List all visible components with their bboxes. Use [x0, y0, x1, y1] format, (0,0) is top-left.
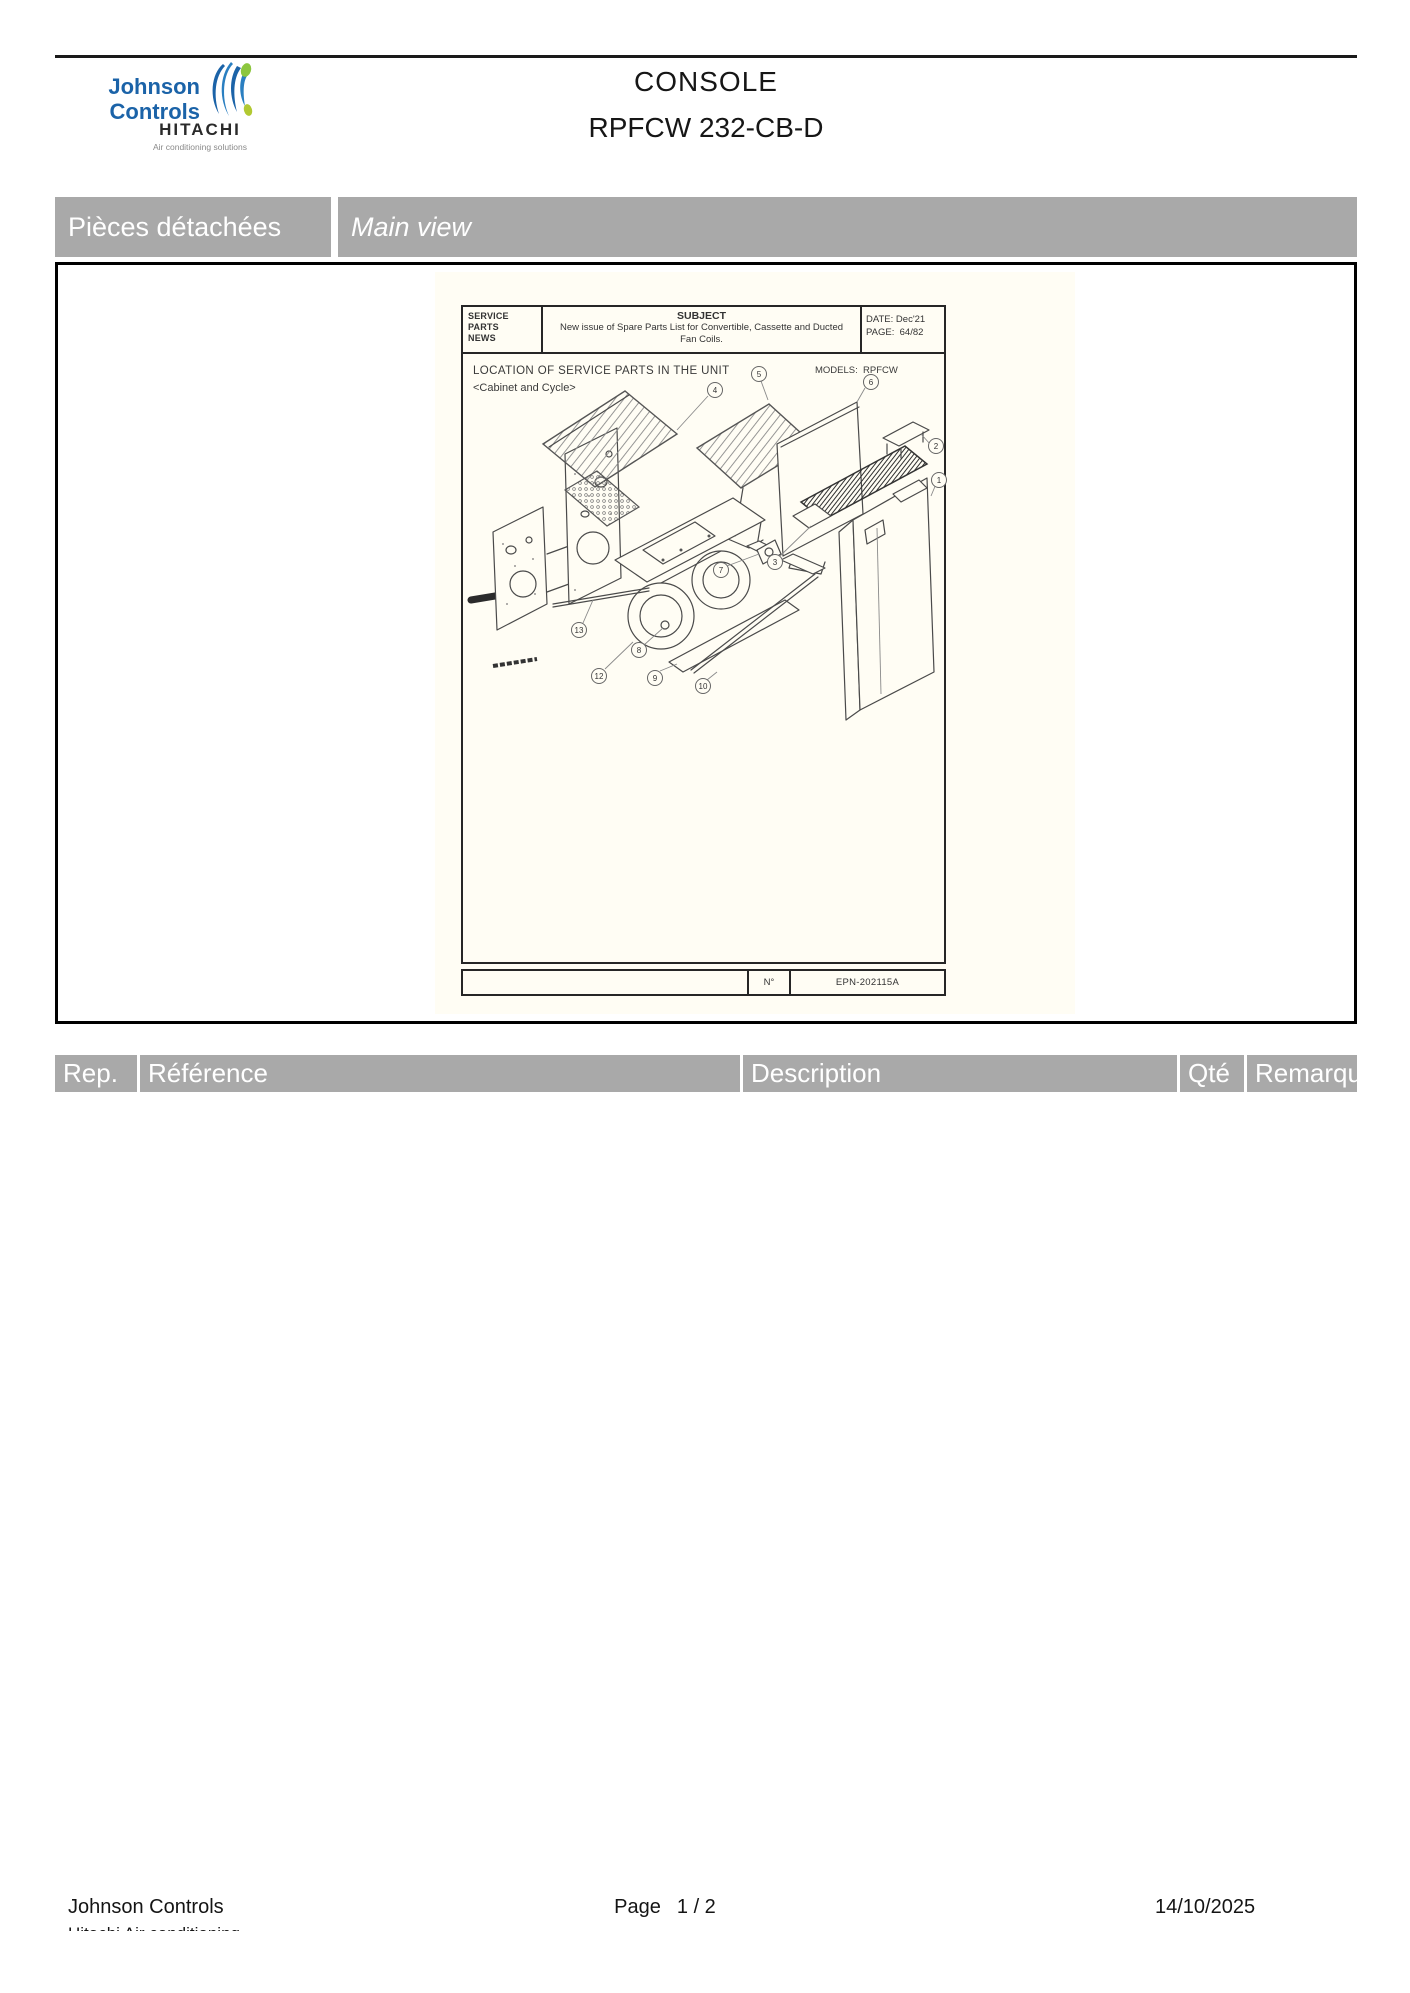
svg-text:1: 1	[937, 476, 942, 485]
spn-header-row: SERVICE PARTS NEWS SUBJECT New issue of …	[463, 307, 944, 354]
section-bar-right: Main view	[338, 197, 1357, 257]
svg-text:9: 9	[653, 674, 658, 683]
page-row: PAGE: 64/82	[866, 326, 940, 339]
callout-5: 5	[752, 367, 767, 382]
subject-text-line1: New issue of Spare Parts List for Conver…	[543, 322, 860, 334]
svg-text:10: 10	[699, 682, 708, 691]
callout-1: 1	[932, 473, 947, 488]
svg-text:5: 5	[757, 370, 762, 379]
spn-drawing-number: EPN-202115A	[791, 971, 944, 994]
spn-subject-cell: SUBJECT New issue of Spare Parts List fo…	[543, 307, 862, 352]
part-fitting	[661, 621, 669, 629]
footer-page-value: 1 / 2	[677, 1896, 716, 1918]
page-title: CONSOLE	[55, 66, 1357, 98]
column-header-qty: Qté	[1180, 1055, 1244, 1092]
svg-text:13: 13	[575, 626, 584, 635]
callout-6: 6	[864, 375, 879, 390]
column-header-reference: Référence	[140, 1055, 740, 1092]
column-header-remarks: Remarques	[1247, 1055, 1357, 1092]
svg-text:4: 4	[713, 386, 718, 395]
footer-page-indicator: Page1 / 2	[0, 1896, 1330, 1919]
svg-text:7: 7	[719, 566, 724, 575]
part-side-panel-left	[493, 507, 547, 630]
document-page: Johnson Controls HITACHI Air conditionin…	[0, 0, 1410, 1993]
subject-label: SUBJECT	[543, 310, 860, 322]
spn-footer-row: N° EPN-202115A	[461, 969, 946, 996]
spn-box-label: SERVICE PARTS NEWS	[463, 307, 543, 352]
part-coil-1	[543, 391, 677, 487]
spn-body: LOCATION OF SERVICE PARTS IN THE UNIT <C…	[463, 354, 944, 962]
svg-text:6: 6	[869, 378, 874, 387]
svg-text:8: 8	[637, 646, 642, 655]
spn-page-label: PAGE:	[866, 327, 894, 338]
part-strip	[493, 659, 537, 666]
svg-text:2: 2	[934, 442, 939, 451]
svg-text:3: 3	[773, 558, 778, 567]
callout-8: 8	[632, 643, 647, 658]
spn-box-line: NEWS	[468, 333, 536, 344]
exploded-view-diagram: 4 5 6 2 1 3 7 13 8 12 9 10	[463, 354, 948, 962]
top-rule	[55, 55, 1357, 58]
callout-12: 12	[592, 669, 607, 684]
column-header-description: Description	[743, 1055, 1177, 1092]
model-title: RPFCW 232-CB-D	[55, 112, 1357, 144]
date-value: Dec'21	[896, 314, 925, 325]
footer-date: 14/10/2025	[1155, 1896, 1255, 1919]
parts-table-header: Rep. Référence Description Qté Remarques	[55, 1055, 1357, 1092]
spn-footer-empty-cell	[463, 971, 749, 994]
date-label: DATE:	[866, 314, 893, 325]
spn-box-line: PARTS	[468, 322, 536, 333]
callout-7: 7	[714, 563, 729, 578]
spn-document: SERVICE PARTS NEWS SUBJECT New issue of …	[461, 305, 946, 964]
svg-text:12: 12	[595, 672, 604, 681]
callout-2: 2	[929, 439, 944, 454]
spn-box-line: SERVICE	[468, 311, 536, 322]
callout-13: 13	[572, 623, 587, 638]
subject-text-line2: Fan Coils.	[543, 334, 860, 346]
callout-9: 9	[648, 671, 663, 686]
spn-date-cell: DATE: Dec'21 PAGE: 64/82	[862, 307, 944, 352]
footer-clipped-line: Hitachi Air conditioning	[68, 1924, 308, 1931]
callout-3: 3	[768, 555, 783, 570]
spn-page-value: 64/82	[900, 327, 924, 338]
date-row: DATE: Dec'21	[866, 313, 940, 326]
footer-page-label: Page	[614, 1896, 661, 1918]
callout-10: 10	[696, 679, 711, 694]
section-bar-left: Pièces détachées	[55, 197, 331, 257]
spn-number-label: N°	[749, 971, 791, 994]
callout-4: 4	[708, 383, 723, 398]
column-header-rep: Rep.	[55, 1055, 137, 1092]
